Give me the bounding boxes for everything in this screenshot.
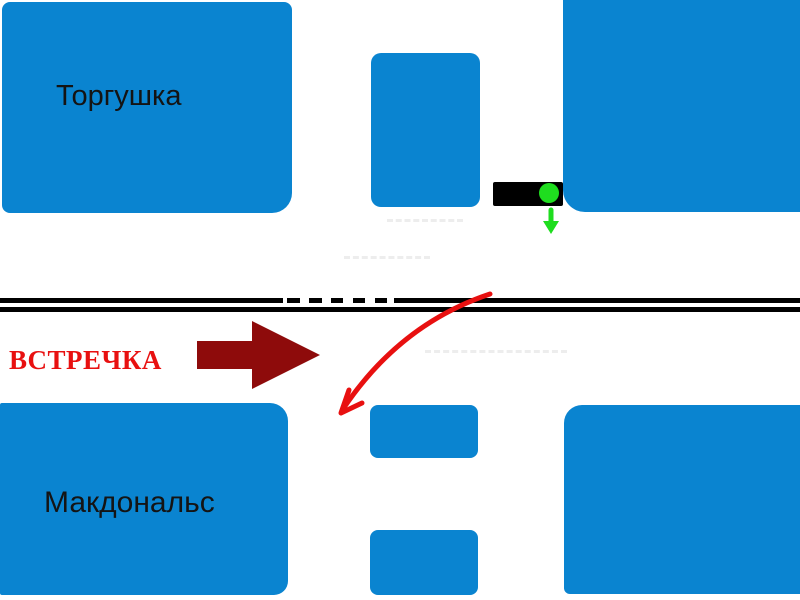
intersection-diagram: Торгушка Макдональс ВСТРЕЧКА xyxy=(0,0,800,600)
top-left-building-label: Торгушка xyxy=(56,80,182,113)
bottom-left-building-label: Макдональс xyxy=(44,486,215,520)
road-dash xyxy=(287,298,300,303)
road-dash xyxy=(331,298,343,303)
road-dash xyxy=(375,298,387,303)
building-bottom-middle-upper xyxy=(370,405,478,458)
green-down-arrow-icon xyxy=(543,210,559,234)
building-bottom-middle-lower xyxy=(370,530,478,595)
road-dash xyxy=(353,298,365,303)
green-signal-light xyxy=(539,183,559,203)
faint-dash-artifact-middle xyxy=(344,256,430,259)
faint-dash-artifact-top xyxy=(387,219,463,222)
road-line-top-left-segment xyxy=(0,298,283,303)
building-top-right xyxy=(563,0,800,212)
faint-dash-artifact-lower xyxy=(425,350,567,353)
road-line-bottom xyxy=(0,307,800,312)
road-dash xyxy=(309,298,322,303)
road-line-top-right-segment xyxy=(394,298,800,303)
building-top-middle xyxy=(371,53,480,207)
building-bottom-right xyxy=(564,405,800,594)
oncoming-traffic-label: ВСТРЕЧКА xyxy=(9,345,162,376)
oncoming-arrow-icon xyxy=(197,321,320,389)
